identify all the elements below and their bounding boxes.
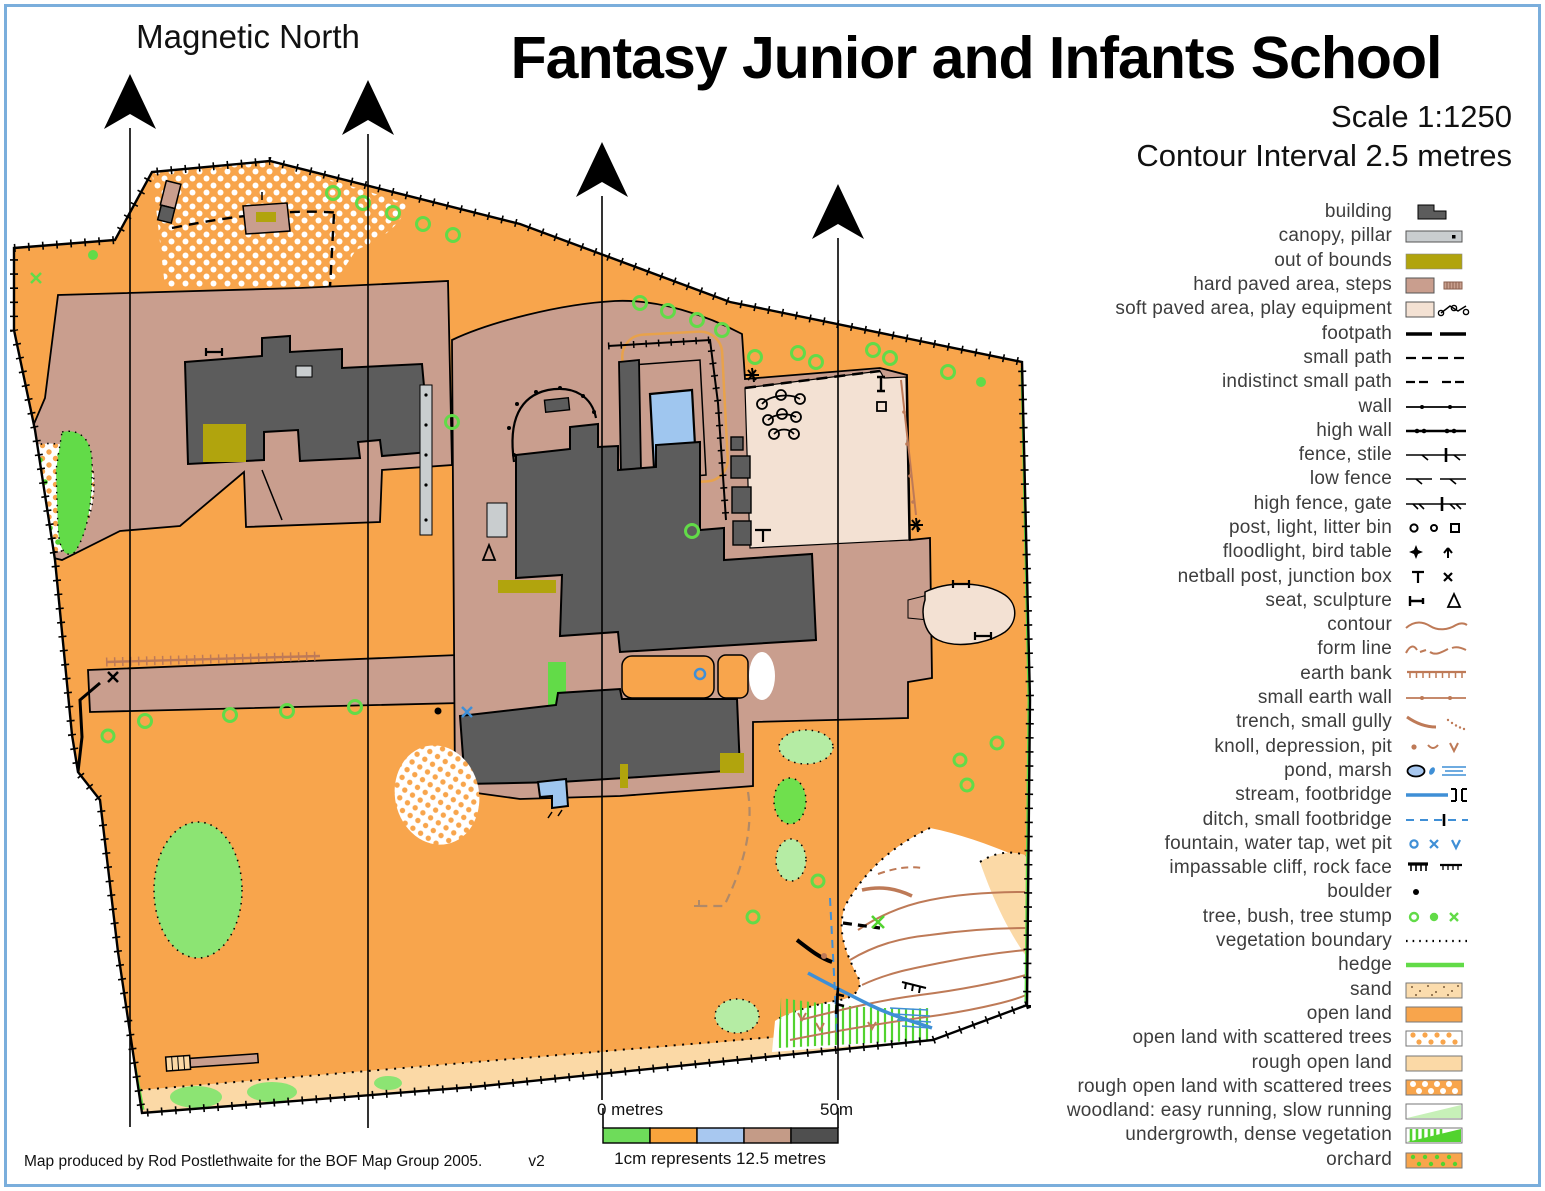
legend-row-high-wall: high wall — [1020, 419, 1480, 443]
high-fence-gate-icon — [1404, 494, 1480, 514]
hard-paved-steps-icon — [1404, 275, 1480, 295]
low-fence-icon — [1404, 469, 1480, 489]
legend-row-small-path: small path — [1020, 346, 1480, 370]
small-path-icon — [1404, 348, 1480, 368]
boulder-icon — [1404, 882, 1480, 902]
small-earth-wall-icon — [1404, 688, 1480, 708]
legend-row-footpath: footpath — [1020, 321, 1480, 345]
fence-stile-icon — [1404, 445, 1480, 465]
scalebar-caption: 1cm represents 12.5 metres — [600, 1149, 840, 1169]
north-arrow-icon — [812, 184, 864, 239]
scalebar-end-label: 50m — [820, 1100, 853, 1120]
cliff-rockface-icon — [1404, 858, 1480, 878]
vegetation-boundary-icon — [1404, 931, 1480, 951]
legend-row-floodlight-birdtable: floodlight, bird table — [1020, 540, 1480, 564]
contour-icon — [1404, 615, 1480, 635]
legend-row-open-scattered: open land with scattered trees — [1020, 1026, 1480, 1050]
earth-bank-icon — [1404, 664, 1480, 684]
screenshot-root: Magnetic North Fantasy Junior and Infant… — [0, 0, 1545, 1191]
north-arrow-icon — [104, 74, 156, 129]
attribution-credit: Map produced by Rod Postlethwaite for th… — [24, 1153, 482, 1170]
legend-row-boulder: boulder — [1020, 880, 1480, 904]
legend-row-small-earth-wall: small earth wall — [1020, 686, 1480, 710]
woodland-swatch — [1404, 1101, 1480, 1121]
legend-row-high-fence-gate: high fence, gate — [1020, 492, 1480, 516]
attribution-version: v2 — [528, 1153, 544, 1170]
legend-row-form-line: form line — [1020, 637, 1480, 661]
out-of-bounds-strip — [498, 580, 556, 593]
map-scale-label: Scale 1:1250 — [900, 99, 1512, 135]
legend-row-seat-sculpture: seat, sculpture — [1020, 589, 1480, 613]
legend-row-soft-paved: soft paved area, play equipment — [1020, 297, 1480, 321]
legend-row-sand: sand — [1020, 978, 1480, 1002]
wall-icon — [1404, 397, 1480, 417]
map-interior — [14, 161, 1030, 1113]
legend-row-knoll: knoll, depression, pit — [1020, 735, 1480, 759]
legend-row-open-land: open land — [1020, 1002, 1480, 1026]
legend-row-ditch: ditch, small footbridge — [1020, 807, 1480, 831]
legend-row-low-fence: low fence — [1020, 467, 1480, 491]
stream-footbridge-icon — [1404, 785, 1480, 805]
legend-row-out-of-bounds: out of bounds — [1020, 249, 1480, 273]
building-icon — [1404, 202, 1480, 222]
legend-row-contour: contour — [1020, 613, 1480, 637]
green-blob-sw — [154, 822, 242, 958]
legend-row-wall: wall — [1020, 394, 1480, 418]
legend-row-pond-marsh: pond, marsh — [1020, 759, 1480, 783]
canopy-pillar-icon — [1404, 226, 1480, 246]
legend-row-woodland: woodland: easy running, slow running — [1020, 1099, 1480, 1123]
page-title: Fantasy Junior and Infants School — [440, 24, 1512, 92]
tree-bush-stump-icon — [1404, 907, 1480, 927]
netball-junction-icon — [1404, 567, 1480, 587]
fountain-tap-wetpit-icon — [1404, 834, 1480, 854]
contour-interval-label: Contour Interval 2.5 metres — [900, 138, 1512, 174]
legend-row-stream: stream, footbridge — [1020, 783, 1480, 807]
legend-row-orchard: orchard — [1020, 1148, 1480, 1172]
legend-row-hard-paved: hard paved area, steps — [1020, 273, 1480, 297]
hedge-icon — [1404, 955, 1480, 975]
legend-row-undergrowth: undergrowth, dense vegetation — [1020, 1123, 1480, 1147]
pool-building — [619, 360, 641, 474]
legend-row-veg-boundary: vegetation boundary — [1020, 929, 1480, 953]
seat-sculpture-icon — [1404, 591, 1480, 611]
pond-marsh-icon — [1404, 761, 1480, 781]
rough-open-scattered-swatch — [1404, 1077, 1480, 1097]
playground-soft-paved — [745, 371, 909, 548]
attribution: Map produced by Rod Postlethwaite for th… — [24, 1153, 545, 1171]
north-arrow-icon — [342, 80, 394, 135]
undergrowth-swatch — [1404, 1125, 1480, 1145]
out-of-bounds-icon — [1404, 251, 1480, 271]
scalebar-start-label: 0 metres — [597, 1100, 663, 1120]
legend-row-rough-scattered: rough open land with scattered trees — [1020, 1075, 1480, 1099]
canopy — [296, 366, 312, 377]
soft-paved-play-icon — [1404, 299, 1480, 319]
white-blob — [749, 652, 775, 700]
legend: building canopy, pillar out of bounds ha… — [1020, 200, 1480, 1172]
legend-row-fountain: fountain, water tap, wet pit — [1020, 832, 1480, 856]
form-line-icon — [1404, 639, 1480, 659]
courtyard-b — [718, 655, 748, 698]
legend-row-indistinct-path: indistinct small path — [1020, 370, 1480, 394]
legend-row-rough-open: rough open land — [1020, 1050, 1480, 1074]
post-light-bin-icon — [1404, 518, 1480, 538]
bush-2 — [976, 377, 986, 387]
bush — [88, 250, 98, 260]
boulder — [435, 708, 442, 715]
knoll-depression-pit-icon — [1404, 737, 1480, 757]
canopy-2 — [487, 503, 507, 537]
magnetic-north-label: Magnetic North — [112, 18, 384, 56]
indistinct-path-icon — [1404, 372, 1480, 392]
legend-row-tree: tree, bush, tree stump — [1020, 905, 1480, 929]
knoll — [821, 953, 827, 959]
legend-row-post-light-bin: post, light, litter bin — [1020, 516, 1480, 540]
courtyard-a — [622, 656, 714, 698]
footpath-icon — [1404, 324, 1480, 344]
legend-row-fence-stile: fence, stile — [1020, 443, 1480, 467]
legend-row-hedge: hedge — [1020, 953, 1480, 977]
legend-row-trench: trench, small gully — [1020, 710, 1480, 734]
covered-walkway — [420, 385, 432, 535]
out-of-bounds-small — [256, 212, 276, 222]
open-land-scattered-swatch — [1404, 1028, 1480, 1048]
high-wall-icon — [1404, 421, 1480, 441]
legend-row-netball-junction: netball post, junction box — [1020, 564, 1480, 588]
floodlight-birdtable-icon — [1404, 542, 1480, 562]
rough-open-swatch — [1404, 1053, 1480, 1073]
orchard-swatch — [1404, 1150, 1480, 1170]
out-of-bounds-area — [203, 424, 246, 462]
open-land-swatch — [1404, 1004, 1480, 1024]
north-arrow-icon — [576, 142, 628, 197]
legend-row-building: building — [1020, 200, 1480, 224]
ditch-footbridge-icon — [1404, 810, 1480, 830]
trench-gully-icon — [1404, 712, 1480, 732]
sand-swatch — [1404, 980, 1480, 1000]
legend-row-cliff: impassable cliff, rock face — [1020, 856, 1480, 880]
legend-row-canopy: canopy, pillar — [1020, 224, 1480, 248]
legend-row-earth-bank: earth bank — [1020, 662, 1480, 686]
